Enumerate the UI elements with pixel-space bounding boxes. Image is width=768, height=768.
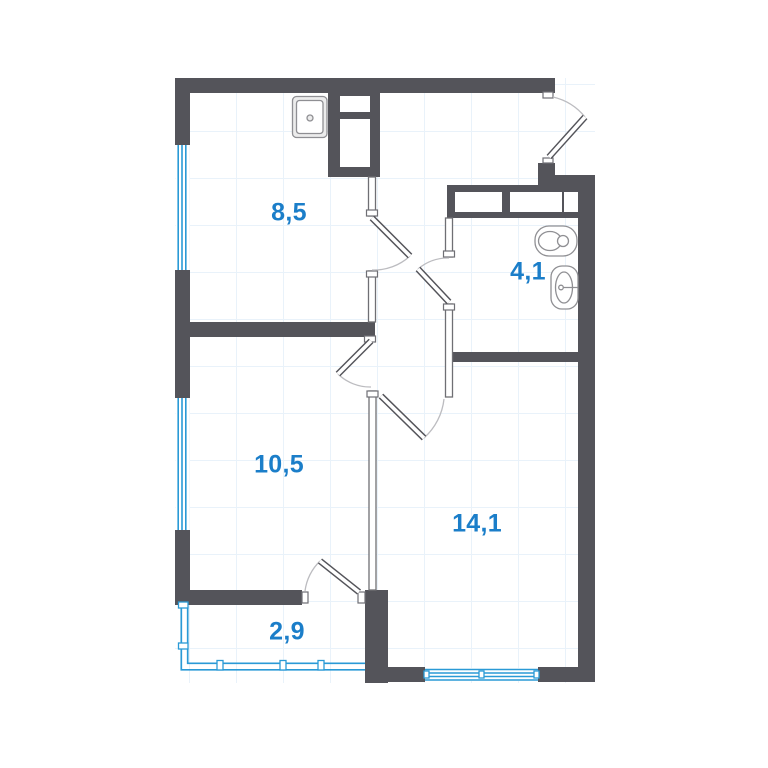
washbasin-icon	[551, 266, 578, 309]
wall-right	[578, 175, 595, 682]
room-area-label-balcony: 2,9	[269, 618, 305, 647]
toilet-icon	[535, 226, 577, 256]
mullion-tick	[280, 661, 286, 671]
wall-left-a	[175, 78, 190, 145]
mullion-tick	[479, 671, 484, 678]
mullion-tick	[217, 661, 223, 671]
shaft-cavity	[564, 192, 578, 212]
wall-bathroom-bottom	[452, 352, 578, 362]
jamb-cap	[367, 271, 378, 277]
jamb-cap	[444, 251, 455, 257]
partition-bath-lower	[446, 304, 453, 397]
wall-divider-kitchen	[175, 322, 375, 337]
partition-kitchen-lower	[369, 271, 376, 322]
shaft-cavity	[510, 192, 562, 212]
jamb-cap	[358, 592, 365, 603]
jamb-cap	[444, 304, 455, 310]
shaft-cavity	[340, 96, 370, 112]
room-area-label-bathroom: 4,1	[510, 258, 546, 287]
jamb-cap	[302, 592, 308, 603]
shaft-cavity	[340, 119, 370, 167]
mullion-tick	[179, 643, 189, 649]
floor-plan-svg	[0, 0, 768, 768]
room-area-label-room-b: 14,1	[452, 510, 502, 539]
floor-plan: 8,5 4,1 10,5 14,1 2,9	[0, 0, 768, 768]
window-room-a	[176, 398, 190, 530]
wall-entrance-post	[538, 163, 555, 185]
wall-top	[175, 78, 555, 93]
mullion-tick	[424, 671, 429, 678]
wall-bottom-room-a	[175, 590, 302, 605]
partition-rooms	[369, 391, 376, 590]
kitchen-sink-icon	[293, 97, 328, 138]
shaft-cavity	[455, 192, 502, 212]
room-area-label-room-a: 10,5	[254, 451, 304, 480]
room-area-label-kitchen: 8,5	[271, 199, 307, 228]
window-room-b	[424, 668, 539, 681]
jamb-cap	[543, 92, 553, 98]
mullion-tick	[534, 671, 539, 678]
wall-bottom-left	[370, 667, 425, 682]
jamb-cap	[367, 391, 378, 397]
jamb-cap	[367, 210, 378, 216]
mullion-tick	[318, 661, 324, 671]
mullion-tick	[179, 602, 189, 608]
window-kitchen	[176, 145, 190, 270]
wall-top-right	[555, 175, 595, 185]
